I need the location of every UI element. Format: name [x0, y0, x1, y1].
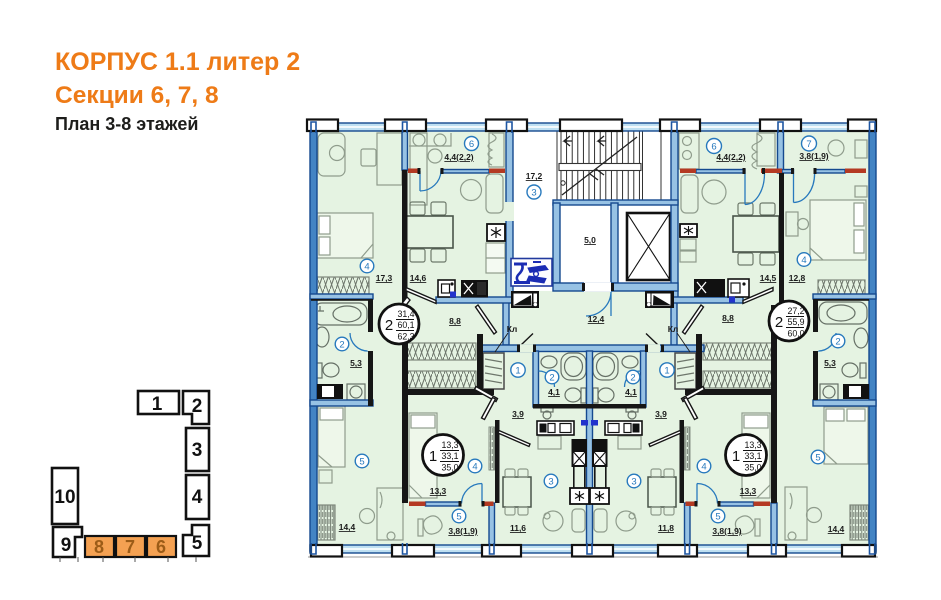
svg-text:Секции 6, 7, 8: Секции 6, 7, 8 [55, 82, 219, 109]
svg-text:3,8(1,9): 3,8(1,9) [712, 526, 741, 536]
svg-text:4: 4 [801, 255, 806, 266]
svg-text:1: 1 [515, 366, 520, 377]
svg-text:6: 6 [156, 537, 166, 557]
svg-text:3: 3 [192, 440, 203, 461]
svg-text:14,5: 14,5 [760, 273, 777, 283]
svg-text:Кл: Кл [668, 324, 679, 334]
svg-text:33,1: 33,1 [744, 451, 761, 461]
svg-text:5: 5 [359, 457, 364, 468]
svg-text:КОРПУС 1.1 литер 2: КОРПУС 1.1 литер 2 [55, 48, 300, 76]
svg-text:9: 9 [61, 535, 72, 556]
svg-text:3: 3 [531, 188, 536, 199]
svg-text:8,8: 8,8 [722, 313, 734, 323]
svg-text:4: 4 [364, 262, 369, 273]
svg-text:1: 1 [152, 394, 163, 415]
svg-text:62,3: 62,3 [397, 332, 414, 342]
svg-text:12,4: 12,4 [588, 314, 605, 324]
svg-text:27,2: 27,2 [787, 306, 804, 316]
svg-text:4,4(2,2): 4,4(2,2) [716, 152, 745, 162]
svg-text:14,4: 14,4 [828, 524, 845, 534]
svg-text:5: 5 [192, 533, 203, 554]
svg-text:4,1: 4,1 [625, 387, 637, 397]
svg-text:План 3-8 этажей: План 3-8 этажей [55, 114, 198, 134]
svg-text:13,3: 13,3 [744, 440, 761, 450]
svg-text:17,3: 17,3 [376, 273, 393, 283]
svg-text:13,3: 13,3 [740, 486, 757, 496]
svg-text:3,8(1,9): 3,8(1,9) [799, 151, 828, 161]
svg-text:11,6: 11,6 [510, 523, 526, 533]
svg-text:35,0: 35,0 [744, 463, 761, 473]
svg-text:10: 10 [54, 487, 75, 508]
svg-text:5,3: 5,3 [824, 358, 836, 368]
svg-text:5: 5 [815, 453, 820, 464]
svg-text:5: 5 [456, 512, 461, 523]
svg-text:14,6: 14,6 [410, 273, 427, 283]
svg-text:2: 2 [549, 373, 554, 384]
svg-text:3,8(1,9): 3,8(1,9) [448, 526, 477, 536]
svg-text:6: 6 [469, 139, 474, 150]
svg-text:2: 2 [630, 373, 635, 384]
svg-text:33,1: 33,1 [441, 451, 458, 461]
svg-text:1: 1 [664, 366, 669, 377]
svg-text:2: 2 [775, 314, 783, 331]
svg-text:5: 5 [715, 512, 720, 523]
svg-text:4: 4 [472, 462, 477, 473]
svg-text:6: 6 [711, 142, 716, 153]
svg-text:1: 1 [429, 448, 437, 465]
svg-text:2: 2 [385, 317, 393, 334]
svg-text:13,3: 13,3 [430, 486, 447, 496]
svg-text:4,1: 4,1 [548, 387, 560, 397]
svg-text:2: 2 [835, 337, 840, 348]
svg-text:13,3: 13,3 [441, 440, 458, 450]
svg-text:4,4(2,2): 4,4(2,2) [444, 152, 473, 162]
svg-text:8,8: 8,8 [449, 316, 461, 326]
svg-text:7: 7 [806, 139, 811, 150]
svg-text:7: 7 [125, 537, 135, 557]
svg-text:60,0: 60,0 [787, 329, 804, 339]
svg-text:35,0: 35,0 [441, 463, 458, 473]
svg-text:4: 4 [192, 487, 203, 508]
svg-text:Кл: Кл [507, 324, 518, 334]
svg-text:1: 1 [732, 448, 740, 465]
svg-text:14,4: 14,4 [339, 522, 356, 532]
svg-text:55,9: 55,9 [787, 317, 804, 327]
svg-text:5,3: 5,3 [350, 358, 362, 368]
svg-text:8: 8 [94, 537, 104, 557]
svg-text:60,1: 60,1 [397, 320, 414, 330]
svg-text:12,8: 12,8 [789, 273, 806, 283]
svg-text:4: 4 [701, 462, 706, 473]
svg-text:5,0: 5,0 [584, 235, 596, 245]
svg-text:3: 3 [548, 477, 553, 488]
svg-text:17,2: 17,2 [526, 171, 543, 181]
svg-text:3: 3 [631, 477, 636, 488]
svg-text:31,4: 31,4 [397, 309, 414, 319]
svg-text:3,9: 3,9 [512, 409, 524, 419]
svg-text:11,8: 11,8 [658, 523, 674, 533]
svg-text:2: 2 [339, 340, 344, 351]
svg-text:3,9: 3,9 [655, 409, 667, 419]
svg-text:2: 2 [192, 396, 203, 417]
